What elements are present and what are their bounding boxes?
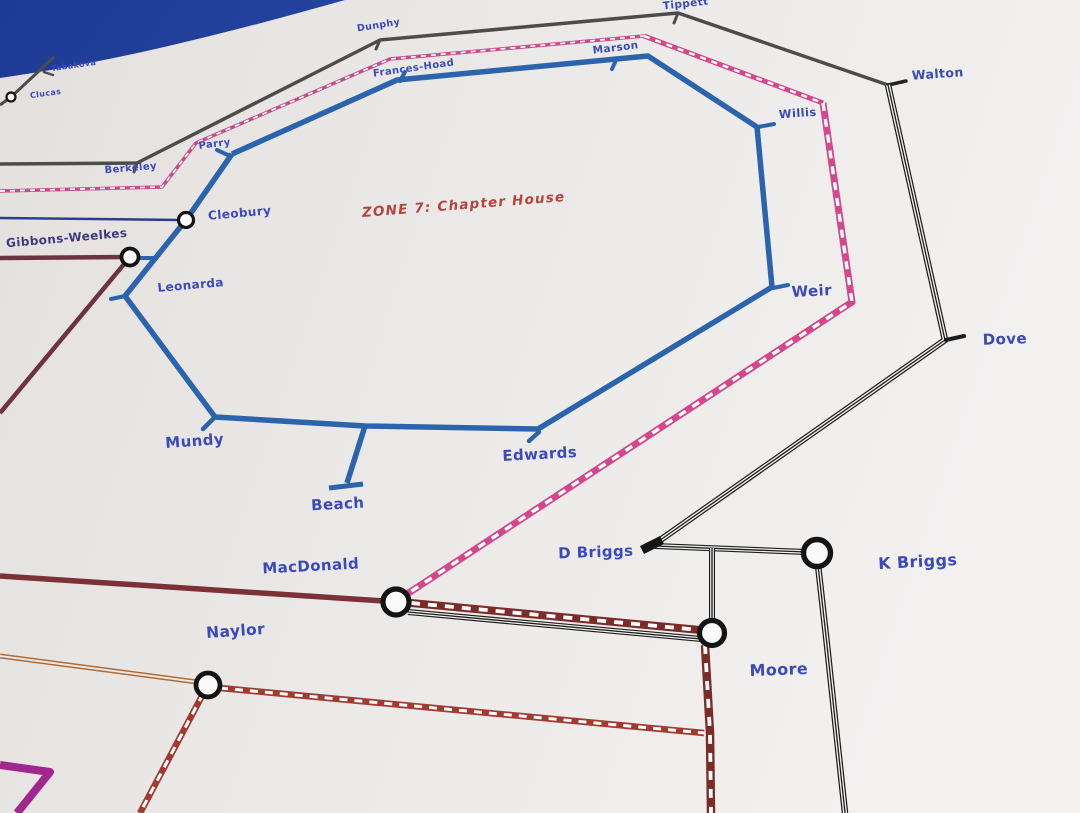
station-label-beach: Beach: [311, 494, 365, 515]
interchange-circle-cleobury: [179, 213, 194, 228]
station-label-willis: Willis: [778, 105, 817, 122]
interchange-circle-k-briggs: [804, 540, 831, 567]
map-paper-sheet: [0, 0, 1080, 813]
tube-map: TabakovaClucasBerkeleyDunphyTippettWalto…: [0, 0, 1080, 813]
interchange-circle-gibbons-weelkes: [122, 249, 139, 266]
interchange-circle-clucas: [7, 93, 16, 102]
station-label-moore: Moore: [749, 659, 808, 680]
interchange-circle-macdonald: [383, 589, 409, 615]
station-label-d-briggs: D Briggs: [558, 542, 634, 563]
interchange-circle-naylor: [196, 673, 220, 697]
station-label-weir: Weir: [791, 281, 832, 301]
map-photo: TabakovaClucasBerkeleyDunphyTippettWalto…: [0, 0, 1080, 813]
interchange-circle-moore: [700, 621, 725, 646]
station-label-dove: Dove: [982, 329, 1027, 349]
